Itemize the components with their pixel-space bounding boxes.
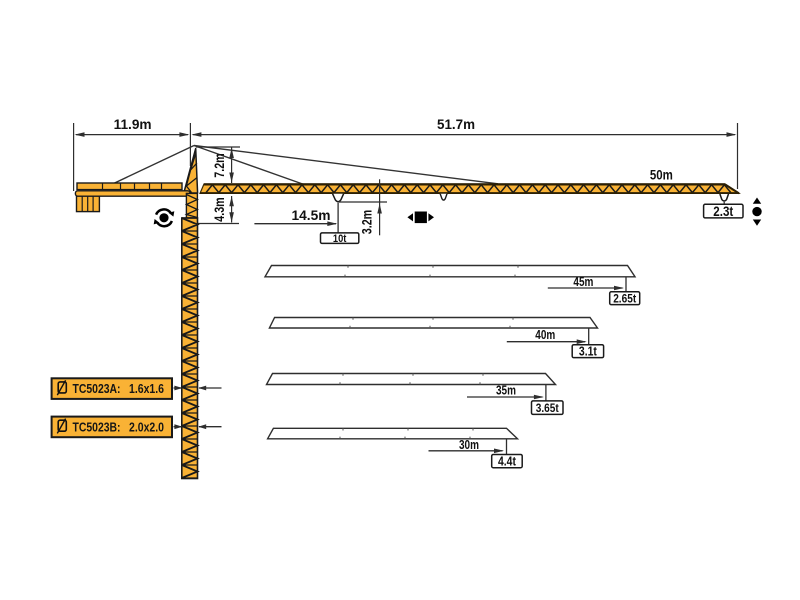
svg-text:4.4t: 4.4t — [498, 455, 517, 469]
svg-text:3.65t: 3.65t — [536, 401, 559, 415]
svg-text:11.9m: 11.9m — [114, 116, 152, 132]
svg-text:2.0x2.0: 2.0x2.0 — [129, 420, 164, 434]
svg-text:1.6x1.6: 1.6x1.6 — [129, 382, 164, 396]
svg-text:45m: 45m — [573, 275, 593, 289]
svg-text:3.2m: 3.2m — [359, 210, 375, 235]
svg-text:TC5023A:: TC5023A: — [73, 382, 121, 396]
svg-text:3.1t: 3.1t — [579, 345, 598, 359]
svg-text:2.65t: 2.65t — [613, 292, 636, 306]
svg-text:50m: 50m — [650, 167, 673, 183]
svg-text:30m: 30m — [459, 438, 479, 452]
svg-text:40m: 40m — [535, 328, 555, 342]
svg-text:2.3t: 2.3t — [713, 204, 733, 219]
svg-text:7.2m: 7.2m — [211, 153, 227, 178]
svg-text:4.3m: 4.3m — [211, 197, 227, 222]
svg-text:10t: 10t — [333, 233, 347, 245]
svg-text:TC5023B:: TC5023B: — [73, 420, 121, 434]
svg-text:35m: 35m — [496, 383, 516, 397]
svg-text:51.7m: 51.7m — [437, 116, 475, 132]
svg-text:14.5m: 14.5m — [292, 207, 331, 223]
